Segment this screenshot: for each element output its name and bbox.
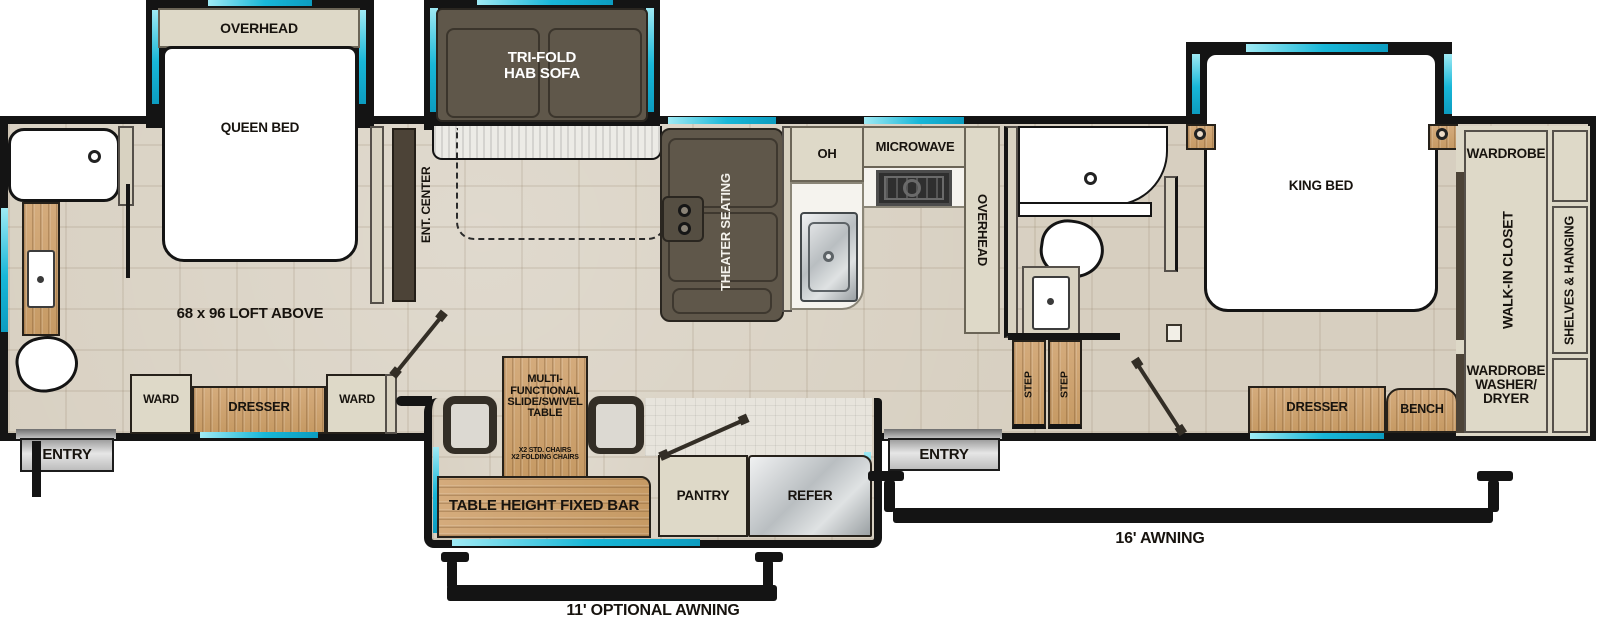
dinette-chair-left-cushion xyxy=(451,404,489,448)
cooktop-burner xyxy=(903,179,921,197)
master-dresser-window xyxy=(1250,433,1384,439)
refrigerator: REFER xyxy=(748,455,872,537)
front-ward-left-label: WARD xyxy=(130,390,192,408)
sofa-label: TRI-FOLD HAB SOFA xyxy=(452,44,632,88)
walk-in-closet-label: WALK-IN CLOSET xyxy=(1492,200,1524,340)
closet-wardrobe-label: WARDROBE xyxy=(1466,146,1546,162)
theater-label: THEATER SEATING xyxy=(712,152,740,312)
nightstand-right-lamp xyxy=(1436,128,1448,140)
bath-wall-right xyxy=(1164,176,1178,272)
ward-wall-stub xyxy=(385,374,397,434)
awning-16-bar xyxy=(893,508,1493,523)
queen-slide-window-top xyxy=(208,0,312,6)
king-slide-window-left xyxy=(1192,54,1200,114)
front-bath-faucet xyxy=(37,276,44,283)
theater-cupholder-2 xyxy=(678,222,691,235)
oh-cabinet: OH xyxy=(790,126,864,182)
left-wall-window xyxy=(1,208,8,332)
bath-faucet xyxy=(1047,298,1054,305)
king-slide-window-top xyxy=(1246,44,1388,52)
shower-glass xyxy=(1018,202,1152,217)
front-ward-right-label: WARD xyxy=(326,390,388,408)
king-bed-label: KING BED xyxy=(1204,176,1438,196)
front-dresser-window xyxy=(200,432,318,438)
dinette-slide-window-bottom xyxy=(452,539,700,546)
bedroom-divider-wall xyxy=(370,126,384,304)
queen-overhead-label: OVERHEAD xyxy=(220,21,298,36)
front-dresser-label: DRESSER xyxy=(192,398,326,416)
queen-bed-label: QUEEN BED xyxy=(162,118,358,138)
microwave: MICROWAVE xyxy=(862,126,968,168)
front-entry-wall-stub xyxy=(32,441,41,497)
tub-pocket-door xyxy=(126,184,130,278)
bathtub-drain xyxy=(88,150,101,163)
awning-11-label: 11' OPTIONAL AWNING xyxy=(548,600,758,622)
theater-console xyxy=(662,196,704,242)
living-wall-window xyxy=(668,117,776,124)
queen-bed xyxy=(162,46,358,262)
entertainment-center-label: ENT. CENTER xyxy=(414,150,438,260)
bath-wall-left xyxy=(1004,126,1018,338)
entertainment-center xyxy=(392,128,416,302)
multi-table-chairs-note: X2 STD. CHAIRS X2 FOLDING CHAIRS xyxy=(504,440,586,468)
pantry: PANTRY xyxy=(658,455,748,537)
awning-16-label: 16' AWNING xyxy=(1070,528,1250,550)
queen-slide-window-right xyxy=(359,10,366,104)
master-bench-label: BENCH xyxy=(1386,400,1458,418)
awning-11-bar xyxy=(447,585,777,601)
awning-11-post-left xyxy=(447,560,457,589)
multi-table-label: MULTI- FUNCTIONAL SLIDE/SWIVEL TABLE xyxy=(504,362,586,432)
step-2-label: STEP xyxy=(1052,352,1078,418)
kitchen-wall-window xyxy=(864,117,964,124)
shelves-hanging-label: SHELVES & HANGING xyxy=(1554,210,1586,350)
kitchen-overhead-label: OVERHEAD xyxy=(966,150,998,310)
shower xyxy=(1018,126,1168,206)
sofa-slide-window-top xyxy=(477,0,613,5)
closet-right-bottom xyxy=(1552,358,1588,433)
fixed-bar-label: TABLE HEIGHT FIXED BAR xyxy=(441,496,647,516)
queen-overhead-cabinet: OVERHEAD xyxy=(158,8,360,48)
rv-floorplan: OVERHEAD QUEEN BED TRI-FOLD HAB SOFA KIN… xyxy=(0,0,1600,635)
bathtub xyxy=(8,128,120,202)
step-1-label: STEP xyxy=(1016,352,1042,418)
shower-drain xyxy=(1084,172,1097,185)
king-slide-window-right xyxy=(1444,54,1452,114)
awning-11-post-right xyxy=(763,560,773,589)
master-dresser-label: DRESSER xyxy=(1248,398,1386,416)
awning-16-post-left xyxy=(884,480,895,512)
theater-cupholder-1 xyxy=(678,204,691,217)
main-entry-door: ENTRY xyxy=(888,438,1000,471)
closet-right-top xyxy=(1552,130,1588,202)
master-door-frame xyxy=(1166,324,1182,342)
awning-16-post-right xyxy=(1488,480,1499,512)
nightstand-left-lamp xyxy=(1194,128,1206,140)
dinette-chair-right-cushion xyxy=(596,404,636,448)
kitchen-sink-drain xyxy=(823,251,834,262)
sofa-travel-dashed-path xyxy=(456,128,666,240)
step-threshold xyxy=(1008,333,1120,340)
loft-label: 68 x 96 LOFT ABOVE xyxy=(140,304,360,324)
wardrobe-washer-dryer-label: WARDROBE WASHER/ DRYER xyxy=(1466,356,1546,414)
